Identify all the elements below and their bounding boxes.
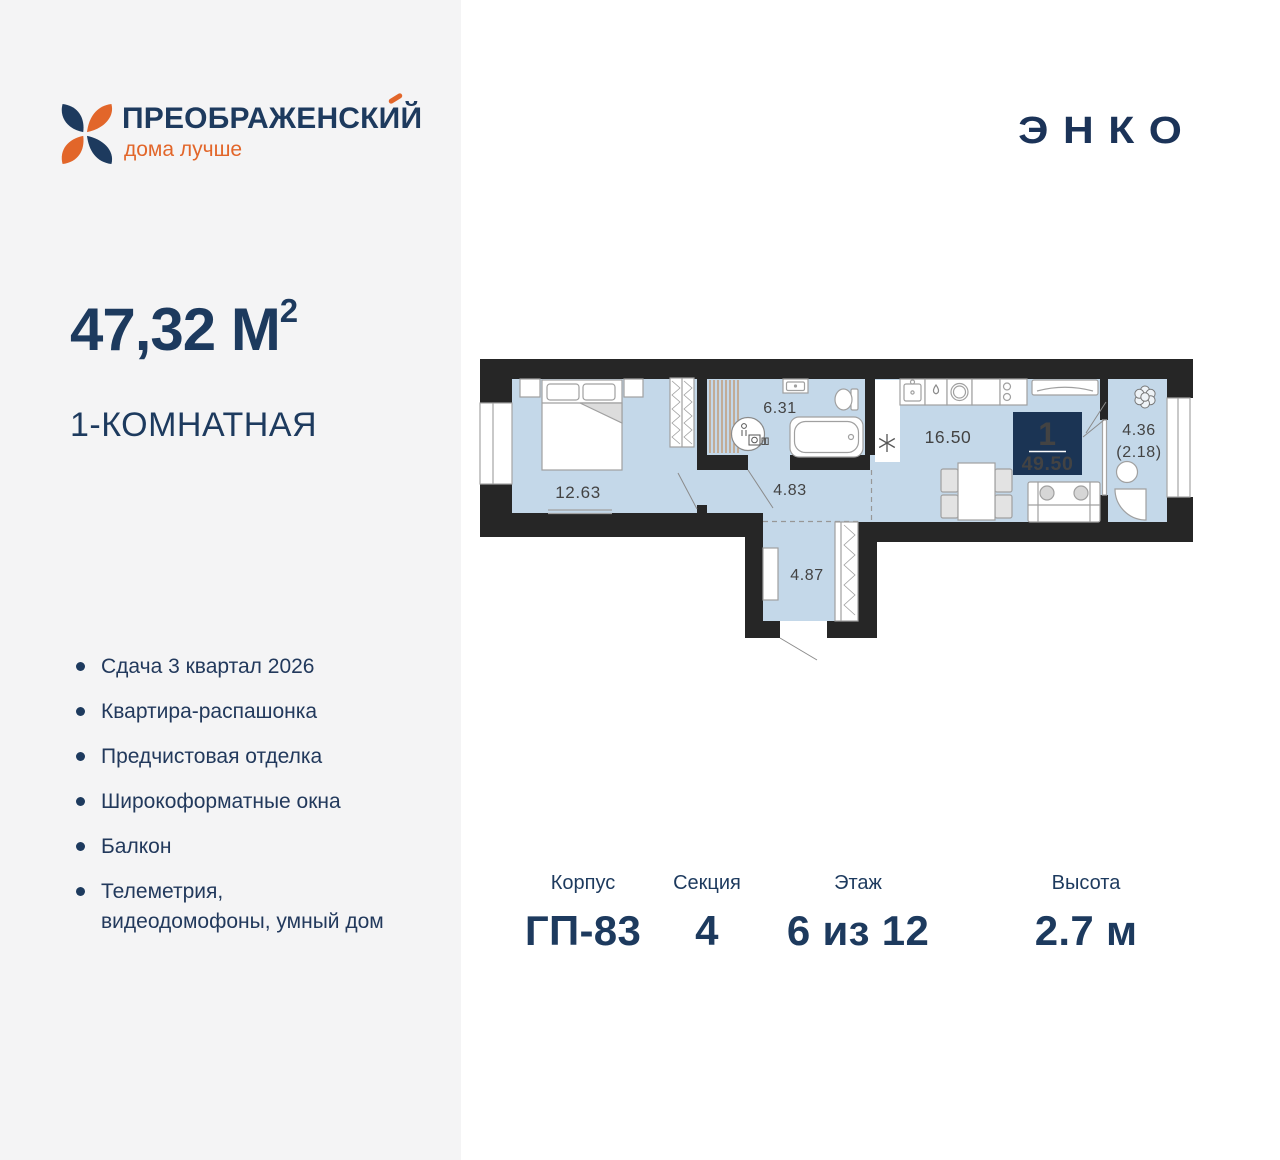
- spec-building: Корпус ГП-83: [525, 872, 641, 955]
- chair: [995, 495, 1012, 518]
- feature-text: Телеметрия, видеодомофоны, умный дом: [101, 877, 384, 937]
- sofa-cushion: [1040, 486, 1054, 500]
- nightstand: [624, 379, 643, 397]
- dining-set: [941, 463, 1012, 520]
- spec-value: 4: [673, 907, 741, 955]
- toilet-bowl: [835, 389, 852, 410]
- developer-logo: ЭНКО: [1004, 110, 1197, 153]
- feature-text: Квартира-распашонка: [101, 697, 317, 727]
- plant-icon: [1135, 386, 1155, 408]
- apartment-area: 47,32 М2: [70, 292, 297, 364]
- feature-item: Сдача 3 квартал 2026: [76, 652, 384, 682]
- room-label-balcony: 4.36: [1122, 422, 1156, 439]
- floor-plan: 1 49.50 12.63 6.31 4.83 16.50 4.87 4.36 …: [460, 340, 1220, 670]
- spec-label: Этаж: [787, 872, 929, 895]
- dining-table: [958, 463, 995, 520]
- chair: [995, 469, 1012, 492]
- feature-text: Балкон: [101, 832, 171, 862]
- window-left: [480, 403, 512, 484]
- spec-label: Корпус: [525, 872, 641, 895]
- features-list: Сдача 3 квартал 2026 Квартира-распашонка…: [76, 652, 384, 952]
- spec-value: 2.7 м: [1035, 907, 1138, 955]
- spec-label: Секция: [673, 872, 741, 895]
- spec-floor: Этаж 6 из 12: [787, 872, 929, 955]
- feature-item: Квартира-распашонка: [76, 697, 384, 727]
- apartment-type: 1-КОМНАТНАЯ: [70, 406, 317, 445]
- hall-wardrobe: [835, 522, 858, 621]
- spec-label: Высота: [1035, 872, 1138, 895]
- feature-item: Широкоформатные окна: [76, 787, 384, 817]
- room-label-corridor: 4.83: [773, 482, 807, 499]
- area-superscript: 2: [280, 292, 297, 329]
- badge-total-area: 49.50: [1022, 453, 1074, 475]
- chair: [941, 469, 958, 492]
- room-label-bathroom: 6.31: [763, 400, 797, 417]
- nightstand: [520, 379, 540, 397]
- room-label-hall: 4.87: [790, 567, 824, 584]
- bullet-dot-icon: [76, 797, 85, 806]
- bullet-dot-icon: [76, 842, 85, 851]
- pillow: [547, 384, 579, 400]
- feature-text: Сдача 3 квартал 2026: [101, 652, 314, 682]
- brand-name: ПРЕОБРАЖЕНСКИЙ: [122, 102, 422, 136]
- kitchen-cabinet: [1000, 379, 1027, 405]
- entrance-door-leaf: [780, 638, 817, 660]
- chair: [941, 495, 958, 518]
- flat-card: ПРЕОБРАЖЕНСКИЙ дома лучше ЭНКО 47,32 М2 …: [0, 0, 1280, 1160]
- balcony-glazing: [1103, 420, 1107, 495]
- feature-item: Телеметрия, видеодомофоны, умный дом: [76, 877, 384, 937]
- spec-height: Высота 2.7 м: [1035, 872, 1138, 955]
- area-value: 47,32 М: [70, 296, 280, 363]
- brand-tagline: дома лучше: [124, 138, 242, 162]
- badge-rooms-count: 1: [1038, 416, 1056, 452]
- room-label-bedroom: 12.63: [555, 483, 601, 502]
- feature-item: Балкон: [76, 832, 384, 862]
- spec-value: 6 из 12: [787, 907, 929, 955]
- sofa: [1028, 482, 1100, 522]
- feature-text: Предчистовая отделка: [101, 742, 322, 772]
- feature-text: Широкоформатные окна: [101, 787, 341, 817]
- bullet-dot-icon: [76, 887, 85, 896]
- spec-value: ГП-83: [525, 907, 641, 955]
- brand-butterfly-icon: [56, 98, 118, 170]
- room-label-kitchen: 16.50: [925, 427, 972, 447]
- bullet-dot-icon: [76, 662, 85, 671]
- pillow: [583, 384, 615, 400]
- brand-logo: ПРЕОБРАЖЕНСКИЙ дома лучше: [56, 98, 416, 178]
- bullet-dot-icon: [76, 752, 85, 761]
- washing-machine-icon: [732, 418, 765, 451]
- balcony-table: [1117, 462, 1138, 483]
- feature-item: Предчистовая отделка: [76, 742, 384, 772]
- bullet-dot-icon: [76, 707, 85, 716]
- dishwasher: [925, 379, 947, 405]
- shoe-rack: [763, 548, 778, 600]
- room-label-balcony-reduced: (2.18): [1116, 444, 1161, 461]
- spec-section: Секция 4: [673, 872, 741, 955]
- plan-badge: 1 49.50: [1013, 412, 1082, 475]
- sofa-cushion: [1074, 486, 1088, 500]
